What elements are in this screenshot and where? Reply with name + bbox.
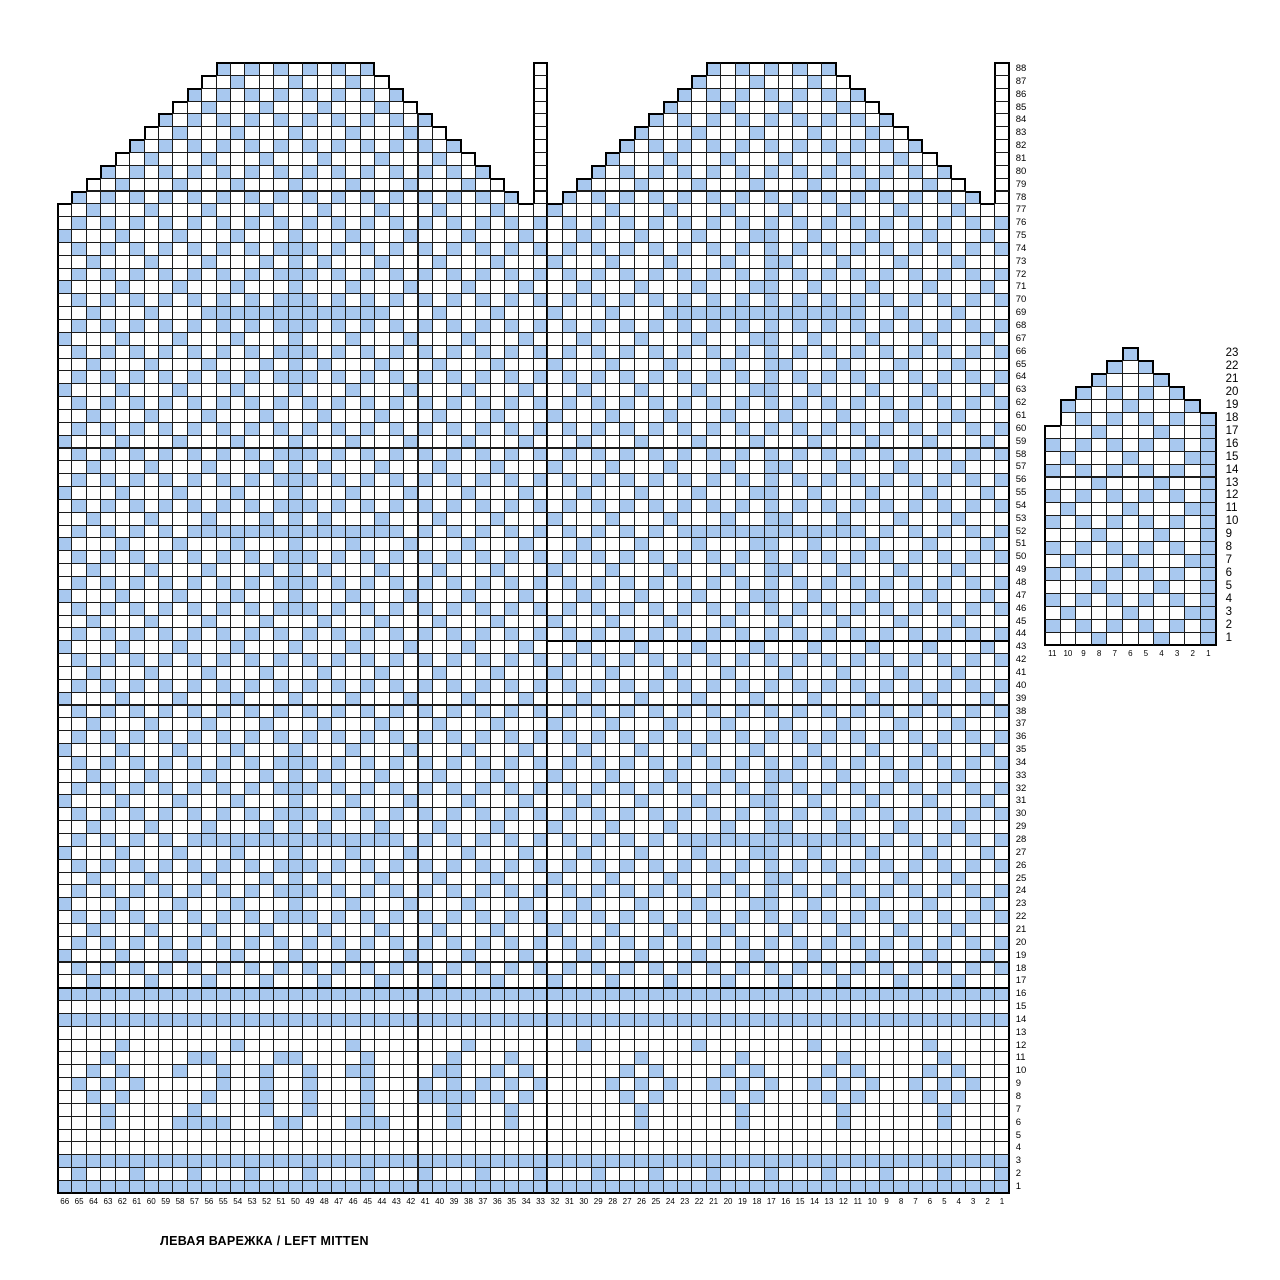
stitch-cell — [230, 949, 245, 963]
stitch-cell — [792, 242, 807, 256]
stitch-cell — [865, 910, 880, 924]
stitch-cell — [893, 679, 908, 693]
stitch-cell — [965, 640, 980, 654]
stitch-cell — [937, 268, 952, 282]
stitch-cell — [677, 306, 692, 320]
stitch-cell — [749, 139, 764, 153]
stitch-cell — [345, 332, 360, 346]
stitch-cell — [432, 1064, 447, 1078]
stitch-cell — [562, 396, 577, 410]
stitch-cell — [317, 627, 332, 641]
row-number-label: 36 — [1016, 730, 1027, 744]
stitch-cell — [461, 473, 476, 487]
stitch-cell — [403, 743, 418, 757]
stitch-cell — [158, 191, 173, 205]
stitch-cell — [71, 615, 86, 629]
stitch-cell — [461, 897, 476, 911]
stitch-cell — [922, 679, 937, 693]
stitch-cell — [764, 422, 779, 436]
stitch-cell — [994, 113, 1009, 127]
stitch-cell — [677, 126, 692, 140]
stitch-cell — [100, 178, 115, 192]
stitch-cell — [389, 306, 404, 320]
stitch-cell — [345, 769, 360, 783]
stitch-cell — [100, 653, 115, 667]
stitch-cell — [778, 756, 793, 770]
stitch-cell — [562, 717, 577, 731]
stitch-cell — [360, 962, 375, 976]
stitch-cell — [634, 949, 649, 963]
stitch-cell — [706, 666, 721, 680]
stitch-cell — [461, 203, 476, 217]
stitch-cell — [57, 422, 72, 436]
stitch-cell — [908, 358, 923, 372]
stitch-cell — [187, 460, 202, 474]
stitch-cell — [302, 460, 317, 474]
stitch-cell — [475, 936, 490, 950]
stitch-cell — [360, 203, 375, 217]
stitch-cell — [547, 460, 562, 474]
stitch-cell — [86, 705, 101, 719]
stitch-cell — [663, 576, 678, 590]
stitch-cell — [735, 679, 750, 693]
stitch-cell — [432, 794, 447, 808]
stitch-cell — [821, 229, 836, 243]
stitch-cell — [446, 332, 461, 346]
stitch-cell — [144, 897, 159, 911]
stitch-cell — [187, 717, 202, 731]
stitch-cell — [893, 1051, 908, 1065]
stitch-cell — [504, 589, 519, 603]
stitch-cell — [360, 987, 375, 1001]
stitch-cell — [893, 910, 908, 924]
stitch-cell — [331, 653, 346, 667]
stitch-cell — [764, 974, 779, 988]
stitch-cell — [749, 242, 764, 256]
stitch-cell — [908, 370, 923, 384]
stitch-cell — [764, 1000, 779, 1014]
stitch-cell — [144, 846, 159, 860]
stitch-cell — [980, 255, 995, 269]
stitch-cell — [331, 666, 346, 680]
stitch-cell — [302, 486, 317, 500]
stitch-cell — [389, 872, 404, 886]
stitch-cell — [706, 126, 721, 140]
stitch-cell — [201, 435, 216, 449]
stitch-cell — [374, 705, 389, 719]
stitch-cell — [144, 1013, 159, 1027]
stitch-cell — [691, 1000, 706, 1014]
stitch-cell — [490, 1051, 505, 1065]
stitch-cell — [201, 203, 216, 217]
stitch-cell — [605, 152, 620, 166]
stitch-cell — [749, 306, 764, 320]
stitch-cell — [850, 280, 865, 294]
stitch-cell — [648, 756, 663, 770]
stitch-cell — [792, 178, 807, 192]
stitch-cell — [691, 216, 706, 230]
stitch-cell — [187, 499, 202, 513]
stitch-cell — [850, 833, 865, 847]
stitch-cell — [100, 846, 115, 860]
stitch-cell — [778, 807, 793, 821]
stitch-cell — [273, 1000, 288, 1014]
stitch-cell — [71, 473, 86, 487]
stitch-cell — [475, 653, 490, 667]
stitch-cell — [172, 139, 187, 153]
stitch-cell — [547, 782, 562, 796]
stitch-cell — [562, 486, 577, 500]
stitch-cell — [144, 499, 159, 513]
stitch-cell — [576, 717, 591, 731]
stitch-cell — [374, 345, 389, 359]
stitch-cell — [778, 139, 793, 153]
stitch-cell — [71, 1039, 86, 1053]
stitch-cell — [677, 576, 692, 590]
stitch-cell — [922, 1013, 937, 1027]
stitch-cell — [677, 782, 692, 796]
stitch-cell — [345, 884, 360, 898]
stitch-cell — [576, 306, 591, 320]
stitch-cell — [965, 383, 980, 397]
stitch-cell — [129, 306, 144, 320]
stitch-cell — [951, 589, 966, 603]
stitch-cell — [720, 807, 735, 821]
stitch-cell — [288, 936, 303, 950]
stitch-cell — [994, 807, 1009, 821]
stitch-cell — [735, 229, 750, 243]
stitch-cell — [691, 499, 706, 513]
stitch-cell — [836, 717, 851, 731]
stitch-cell — [518, 460, 533, 474]
stitch-cell — [446, 615, 461, 629]
stitch-cell — [922, 794, 937, 808]
stitch-cell — [706, 293, 721, 307]
stitch-cell — [360, 666, 375, 680]
stitch-cell — [706, 409, 721, 423]
stitch-cell — [317, 692, 332, 706]
stitch-cell — [605, 897, 620, 911]
stitch-cell — [302, 422, 317, 436]
stitch-cell — [273, 743, 288, 757]
stitch-cell — [605, 499, 620, 513]
stitch-cell — [403, 602, 418, 616]
stitch-cell — [201, 653, 216, 667]
stitch-cell — [418, 923, 433, 937]
stitch-cell — [619, 602, 634, 616]
stitch-cell — [187, 576, 202, 590]
stitch-cell — [244, 859, 259, 873]
stitch-cell — [591, 268, 606, 282]
stitch-cell — [792, 152, 807, 166]
stitch-cell — [230, 280, 245, 294]
stitch-cell — [533, 280, 548, 294]
stitch-cell — [720, 717, 735, 731]
stitch-cell — [418, 563, 433, 577]
stitch-cell — [764, 255, 779, 269]
stitch-cell — [100, 872, 115, 886]
stitch-cell — [792, 1000, 807, 1014]
stitch-cell — [677, 139, 692, 153]
stitch-cell — [230, 75, 245, 89]
stitch-cell — [778, 460, 793, 474]
stitch-cell — [778, 897, 793, 911]
stitch-cell — [879, 178, 894, 192]
stitch-cell — [475, 717, 490, 731]
stitch-cell — [389, 473, 404, 487]
stitch-cell — [965, 370, 980, 384]
stitch-cell — [259, 640, 274, 654]
stitch-cell — [677, 615, 692, 629]
stitch-cell — [980, 769, 995, 783]
stitch-cell — [230, 332, 245, 346]
stitch-cell — [144, 370, 159, 384]
stitch-cell — [720, 358, 735, 372]
stitch-cell — [619, 280, 634, 294]
stitch-cell — [879, 897, 894, 911]
stitch-cell — [158, 409, 173, 423]
stitch-cell — [764, 807, 779, 821]
stitch-cell — [908, 1013, 923, 1027]
stitch-cell — [244, 75, 259, 89]
stitch-cell — [663, 820, 678, 834]
stitch-cell — [663, 679, 678, 693]
stitch-cell — [879, 769, 894, 783]
stitch-cell — [418, 627, 433, 641]
stitch-cell — [821, 409, 836, 423]
stitch-cell — [922, 615, 937, 629]
stitch-cell — [764, 75, 779, 89]
stitch-cell — [216, 165, 231, 179]
stitch-cell — [605, 537, 620, 551]
stitch-cell — [937, 512, 952, 526]
stitch-cell — [605, 563, 620, 577]
stitch-cell — [374, 936, 389, 950]
stitch-cell — [576, 293, 591, 307]
stitch-cell — [259, 692, 274, 706]
stitch-cell — [720, 730, 735, 744]
stitch-cell — [764, 936, 779, 950]
stitch-cell — [490, 191, 505, 205]
stitch-cell — [201, 897, 216, 911]
stitch-cell — [994, 884, 1009, 898]
stitch-cell — [634, 974, 649, 988]
stitch-cell — [475, 833, 490, 847]
stitch-cell — [115, 1064, 130, 1078]
stitch-cell — [720, 666, 735, 680]
stitch-cell — [980, 846, 995, 860]
stitch-cell — [821, 769, 836, 783]
stitch-cell — [836, 679, 851, 693]
stitch-cell — [446, 345, 461, 359]
stitch-cell — [446, 1013, 461, 1027]
stitch-cell — [879, 782, 894, 796]
stitch-cell — [273, 139, 288, 153]
stitch-cell — [403, 499, 418, 513]
stitch-cell — [389, 499, 404, 513]
stitch-cell — [764, 1039, 779, 1053]
stitch-cell — [418, 1000, 433, 1014]
stitch-cell — [951, 653, 966, 667]
stitch-cell — [764, 126, 779, 140]
stitch-cell — [792, 936, 807, 950]
stitch-cell — [850, 473, 865, 487]
stitch-cell — [57, 640, 72, 654]
stitch-cell — [57, 653, 72, 667]
stitch-cell — [403, 550, 418, 564]
stitch-cell — [879, 191, 894, 205]
stitch-cell — [663, 756, 678, 770]
stitch-cell — [720, 255, 735, 269]
stitch-cell — [778, 229, 793, 243]
stitch-cell — [317, 319, 332, 333]
stitch-cell — [821, 833, 836, 847]
stitch-cell — [331, 268, 346, 282]
stitch-cell — [201, 820, 216, 834]
stitch-cell — [418, 910, 433, 924]
stitch-cell — [749, 178, 764, 192]
stitch-cell — [187, 268, 202, 282]
stitch-cell — [490, 550, 505, 564]
stitch-cell — [865, 807, 880, 821]
stitch-cell — [850, 859, 865, 873]
stitch-cell — [677, 910, 692, 924]
stitch-cell — [778, 345, 793, 359]
stitch-cell — [100, 370, 115, 384]
stitch-cell — [504, 396, 519, 410]
stitch-cell — [922, 962, 937, 976]
stitch-cell — [518, 1000, 533, 1014]
stitch-cell — [547, 280, 562, 294]
stitch-cell — [244, 229, 259, 243]
stitch-cell — [302, 537, 317, 551]
stitch-cell — [547, 949, 562, 963]
stitch-cell — [360, 383, 375, 397]
stitch-cell — [129, 448, 144, 462]
stitch-cell — [591, 319, 606, 333]
stitch-cell — [562, 884, 577, 898]
stitch-cell — [749, 589, 764, 603]
stitch-cell — [547, 730, 562, 744]
stitch-cell — [677, 550, 692, 564]
stitch-cell — [576, 448, 591, 462]
stitch-cell — [345, 396, 360, 410]
stitch-cell — [691, 448, 706, 462]
stitch-cell — [720, 923, 735, 937]
row-number-label: 40 — [1016, 679, 1027, 693]
stitch-cell — [720, 319, 735, 333]
stitch-cell — [259, 974, 274, 988]
stitch-cell — [100, 910, 115, 924]
stitch-cell — [951, 1000, 966, 1014]
stitch-cell — [504, 499, 519, 513]
stitch-cell — [446, 859, 461, 873]
stitch-cell — [965, 897, 980, 911]
stitch-cell — [518, 370, 533, 384]
stitch-cell — [187, 435, 202, 449]
stitch-cell — [908, 859, 923, 873]
stitch-cell — [317, 602, 332, 616]
stitch-cell — [172, 216, 187, 230]
stitch-cell — [345, 1051, 360, 1065]
stitch-cell — [792, 460, 807, 474]
stitch-cell — [244, 409, 259, 423]
stitch-cell — [288, 113, 303, 127]
stitch-cell — [158, 358, 173, 372]
stitch-cell — [302, 75, 317, 89]
stitch-cell — [677, 743, 692, 757]
stitch-cell — [879, 794, 894, 808]
stitch-cell — [403, 769, 418, 783]
stitch-cell — [576, 358, 591, 372]
stitch-cell — [418, 216, 433, 230]
stitch-cell — [158, 872, 173, 886]
stitch-cell — [850, 152, 865, 166]
stitch-cell — [244, 550, 259, 564]
stitch-cell — [331, 846, 346, 860]
stitch-cell — [547, 692, 562, 706]
stitch-cell — [749, 345, 764, 359]
stitch-cell — [850, 293, 865, 307]
stitch-cell — [374, 255, 389, 269]
stitch-cell — [187, 563, 202, 577]
stitch-cell — [273, 319, 288, 333]
stitch-cell — [490, 962, 505, 976]
stitch-cell — [547, 769, 562, 783]
stitch-cell — [86, 512, 101, 526]
stitch-cell — [735, 358, 750, 372]
stitch-cell — [908, 178, 923, 192]
stitch-cell — [288, 229, 303, 243]
stitch-cell — [57, 512, 72, 526]
stitch-cell — [273, 769, 288, 783]
stitch-cell — [115, 1039, 130, 1053]
stitch-cell — [100, 602, 115, 616]
stitch-cell — [273, 627, 288, 641]
stitch-cell — [172, 358, 187, 372]
stitch-cell — [922, 203, 937, 217]
stitch-cell — [720, 782, 735, 796]
stitch-cell — [461, 280, 476, 294]
stitch-cell — [129, 1000, 144, 1014]
stitch-cell — [836, 280, 851, 294]
stitch-cell — [619, 422, 634, 436]
stitch-cell — [288, 139, 303, 153]
stitch-cell — [360, 679, 375, 693]
stitch-cell — [836, 293, 851, 307]
stitch-cell — [576, 692, 591, 706]
stitch-cell — [533, 422, 548, 436]
stitch-cell — [302, 216, 317, 230]
stitch-cell — [115, 705, 130, 719]
stitch-cell — [403, 807, 418, 821]
stitch-cell — [518, 216, 533, 230]
stitch-cell — [677, 679, 692, 693]
stitch-cell — [951, 782, 966, 796]
stitch-cell — [418, 332, 433, 346]
stitch-cell — [403, 1013, 418, 1027]
stitch-cell — [490, 692, 505, 706]
stitch-cell — [634, 525, 649, 539]
stitch-cell — [562, 306, 577, 320]
stitch-cell — [504, 203, 519, 217]
stitch-cell — [922, 242, 937, 256]
stitch-cell — [677, 499, 692, 513]
stitch-cell — [71, 1000, 86, 1014]
stitch-cell — [389, 370, 404, 384]
stitch-cell — [562, 203, 577, 217]
stitch-cell — [720, 370, 735, 384]
